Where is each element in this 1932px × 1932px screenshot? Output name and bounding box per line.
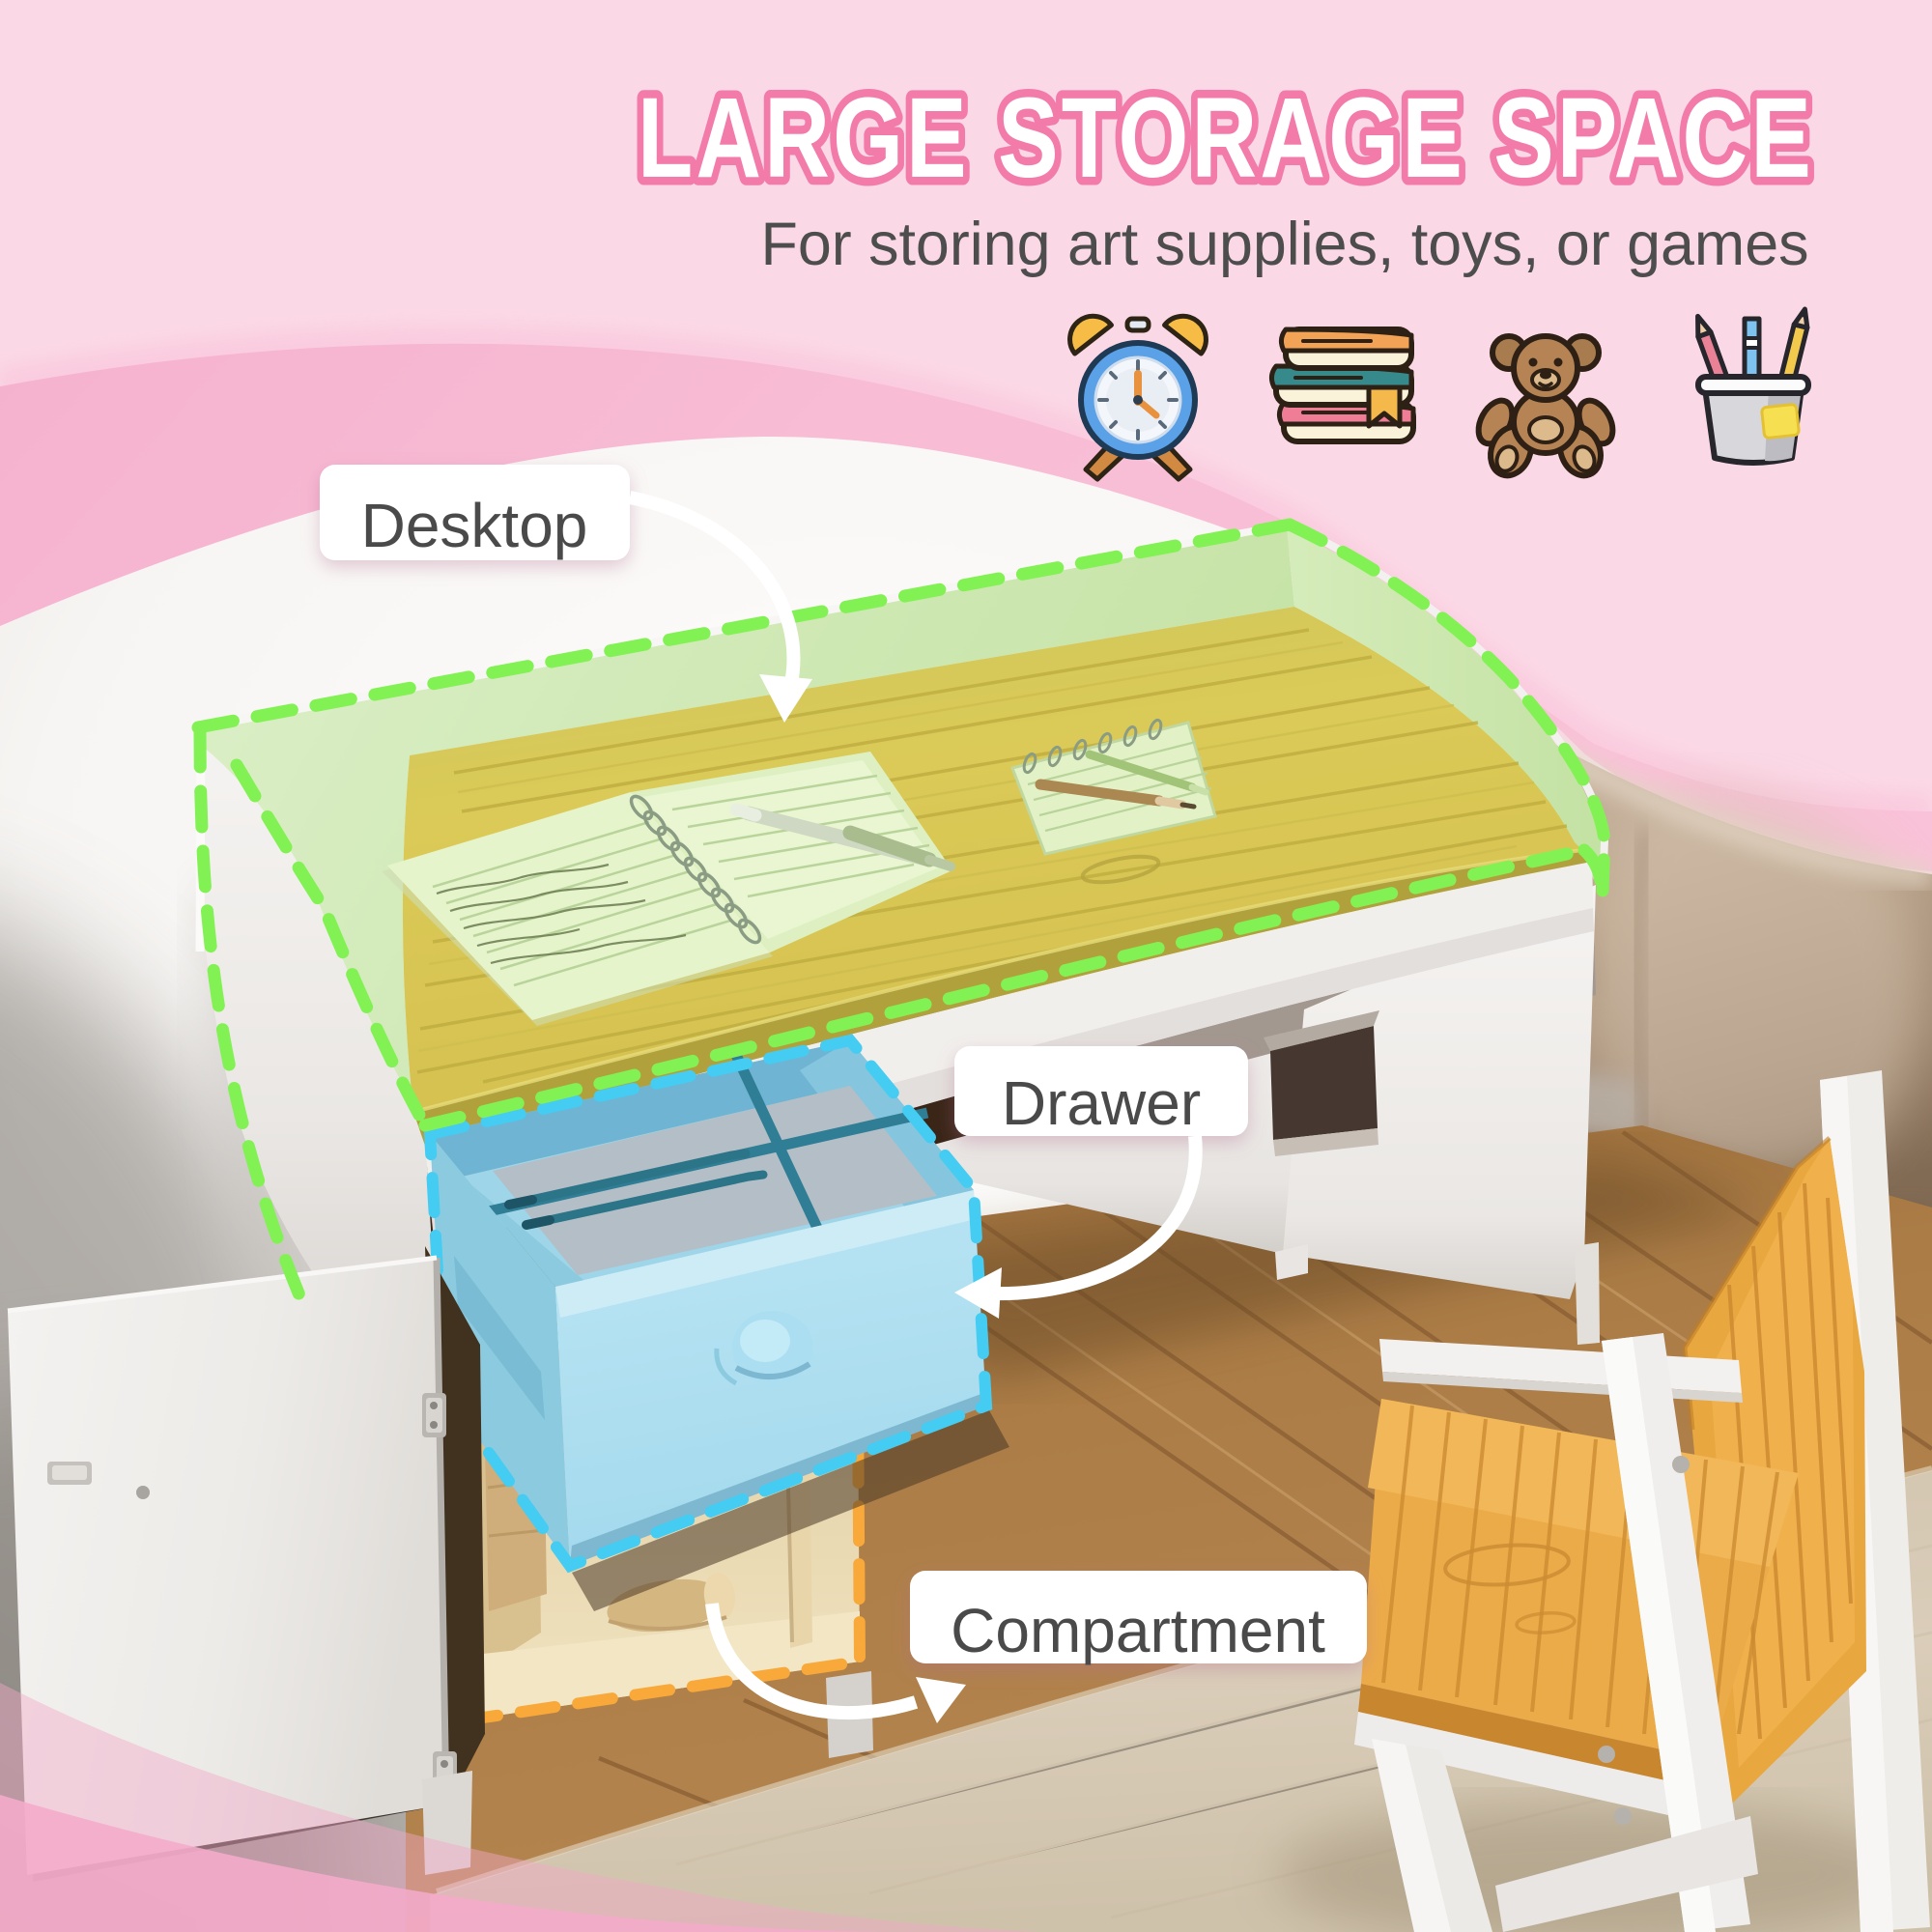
svg-text:Compartment: Compartment: [951, 1596, 1325, 1665]
svg-text:LARGE STORAGE SPACE: LARGE STORAGE SPACE: [638, 74, 1814, 202]
svg-text:For storing art supplies, toys: For storing art supplies, toys, or games: [761, 211, 1809, 278]
svg-text:Drawer: Drawer: [1002, 1068, 1201, 1138]
svg-text:Desktop: Desktop: [361, 491, 588, 560]
